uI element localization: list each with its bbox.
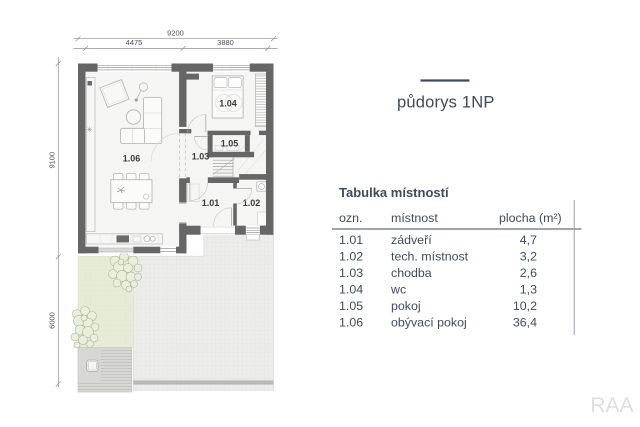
svg-text:1.03: 1.03 — [339, 266, 363, 280]
svg-text:1.05: 1.05 — [339, 299, 363, 313]
svg-text:1,3: 1,3 — [520, 283, 537, 297]
svg-text:9100: 9100 — [48, 152, 57, 169]
svg-text:1.04: 1.04 — [219, 99, 237, 109]
svg-text:1.02: 1.02 — [243, 198, 261, 208]
svg-text:4475: 4475 — [126, 38, 143, 47]
svg-text:RAA: RAA — [590, 394, 633, 417]
svg-text:3,2: 3,2 — [520, 250, 537, 264]
svg-text:4,7: 4,7 — [520, 233, 537, 247]
svg-text:1.01: 1.01 — [202, 198, 220, 208]
svg-text:Tabulka místností: Tabulka místností — [339, 185, 449, 200]
svg-text:půdorys 1NP: půdorys 1NP — [397, 94, 495, 112]
svg-text:ozn.: ozn. — [339, 211, 362, 225]
svg-text:10,2: 10,2 — [513, 299, 537, 313]
svg-text:pokoj: pokoj — [391, 299, 421, 313]
svg-text:1.03: 1.03 — [192, 152, 210, 162]
svg-text:9200: 9200 — [167, 28, 184, 37]
svg-text:1.05: 1.05 — [221, 139, 239, 149]
svg-text:obývací pokoj: obývací pokoj — [391, 316, 467, 330]
svg-text:wc: wc — [390, 283, 406, 297]
svg-text:plocha (m²): plocha (m²) — [499, 211, 562, 225]
svg-text:chodba: chodba — [391, 266, 432, 280]
svg-text:tech. místnost: tech. místnost — [391, 250, 469, 264]
svg-text:1.02: 1.02 — [339, 250, 363, 264]
svg-text:1.06: 1.06 — [339, 316, 363, 330]
svg-text:1.01: 1.01 — [339, 233, 363, 247]
svg-text:zádveří: zádveří — [391, 233, 432, 247]
svg-text:2,6: 2,6 — [520, 266, 537, 280]
svg-text:6000: 6000 — [48, 312, 57, 329]
svg-text:1.04: 1.04 — [339, 283, 363, 297]
svg-text:36,4: 36,4 — [513, 316, 537, 330]
svg-text:1.06: 1.06 — [123, 154, 141, 164]
svg-text:3880: 3880 — [217, 38, 234, 47]
svg-text:místnost: místnost — [391, 211, 438, 225]
